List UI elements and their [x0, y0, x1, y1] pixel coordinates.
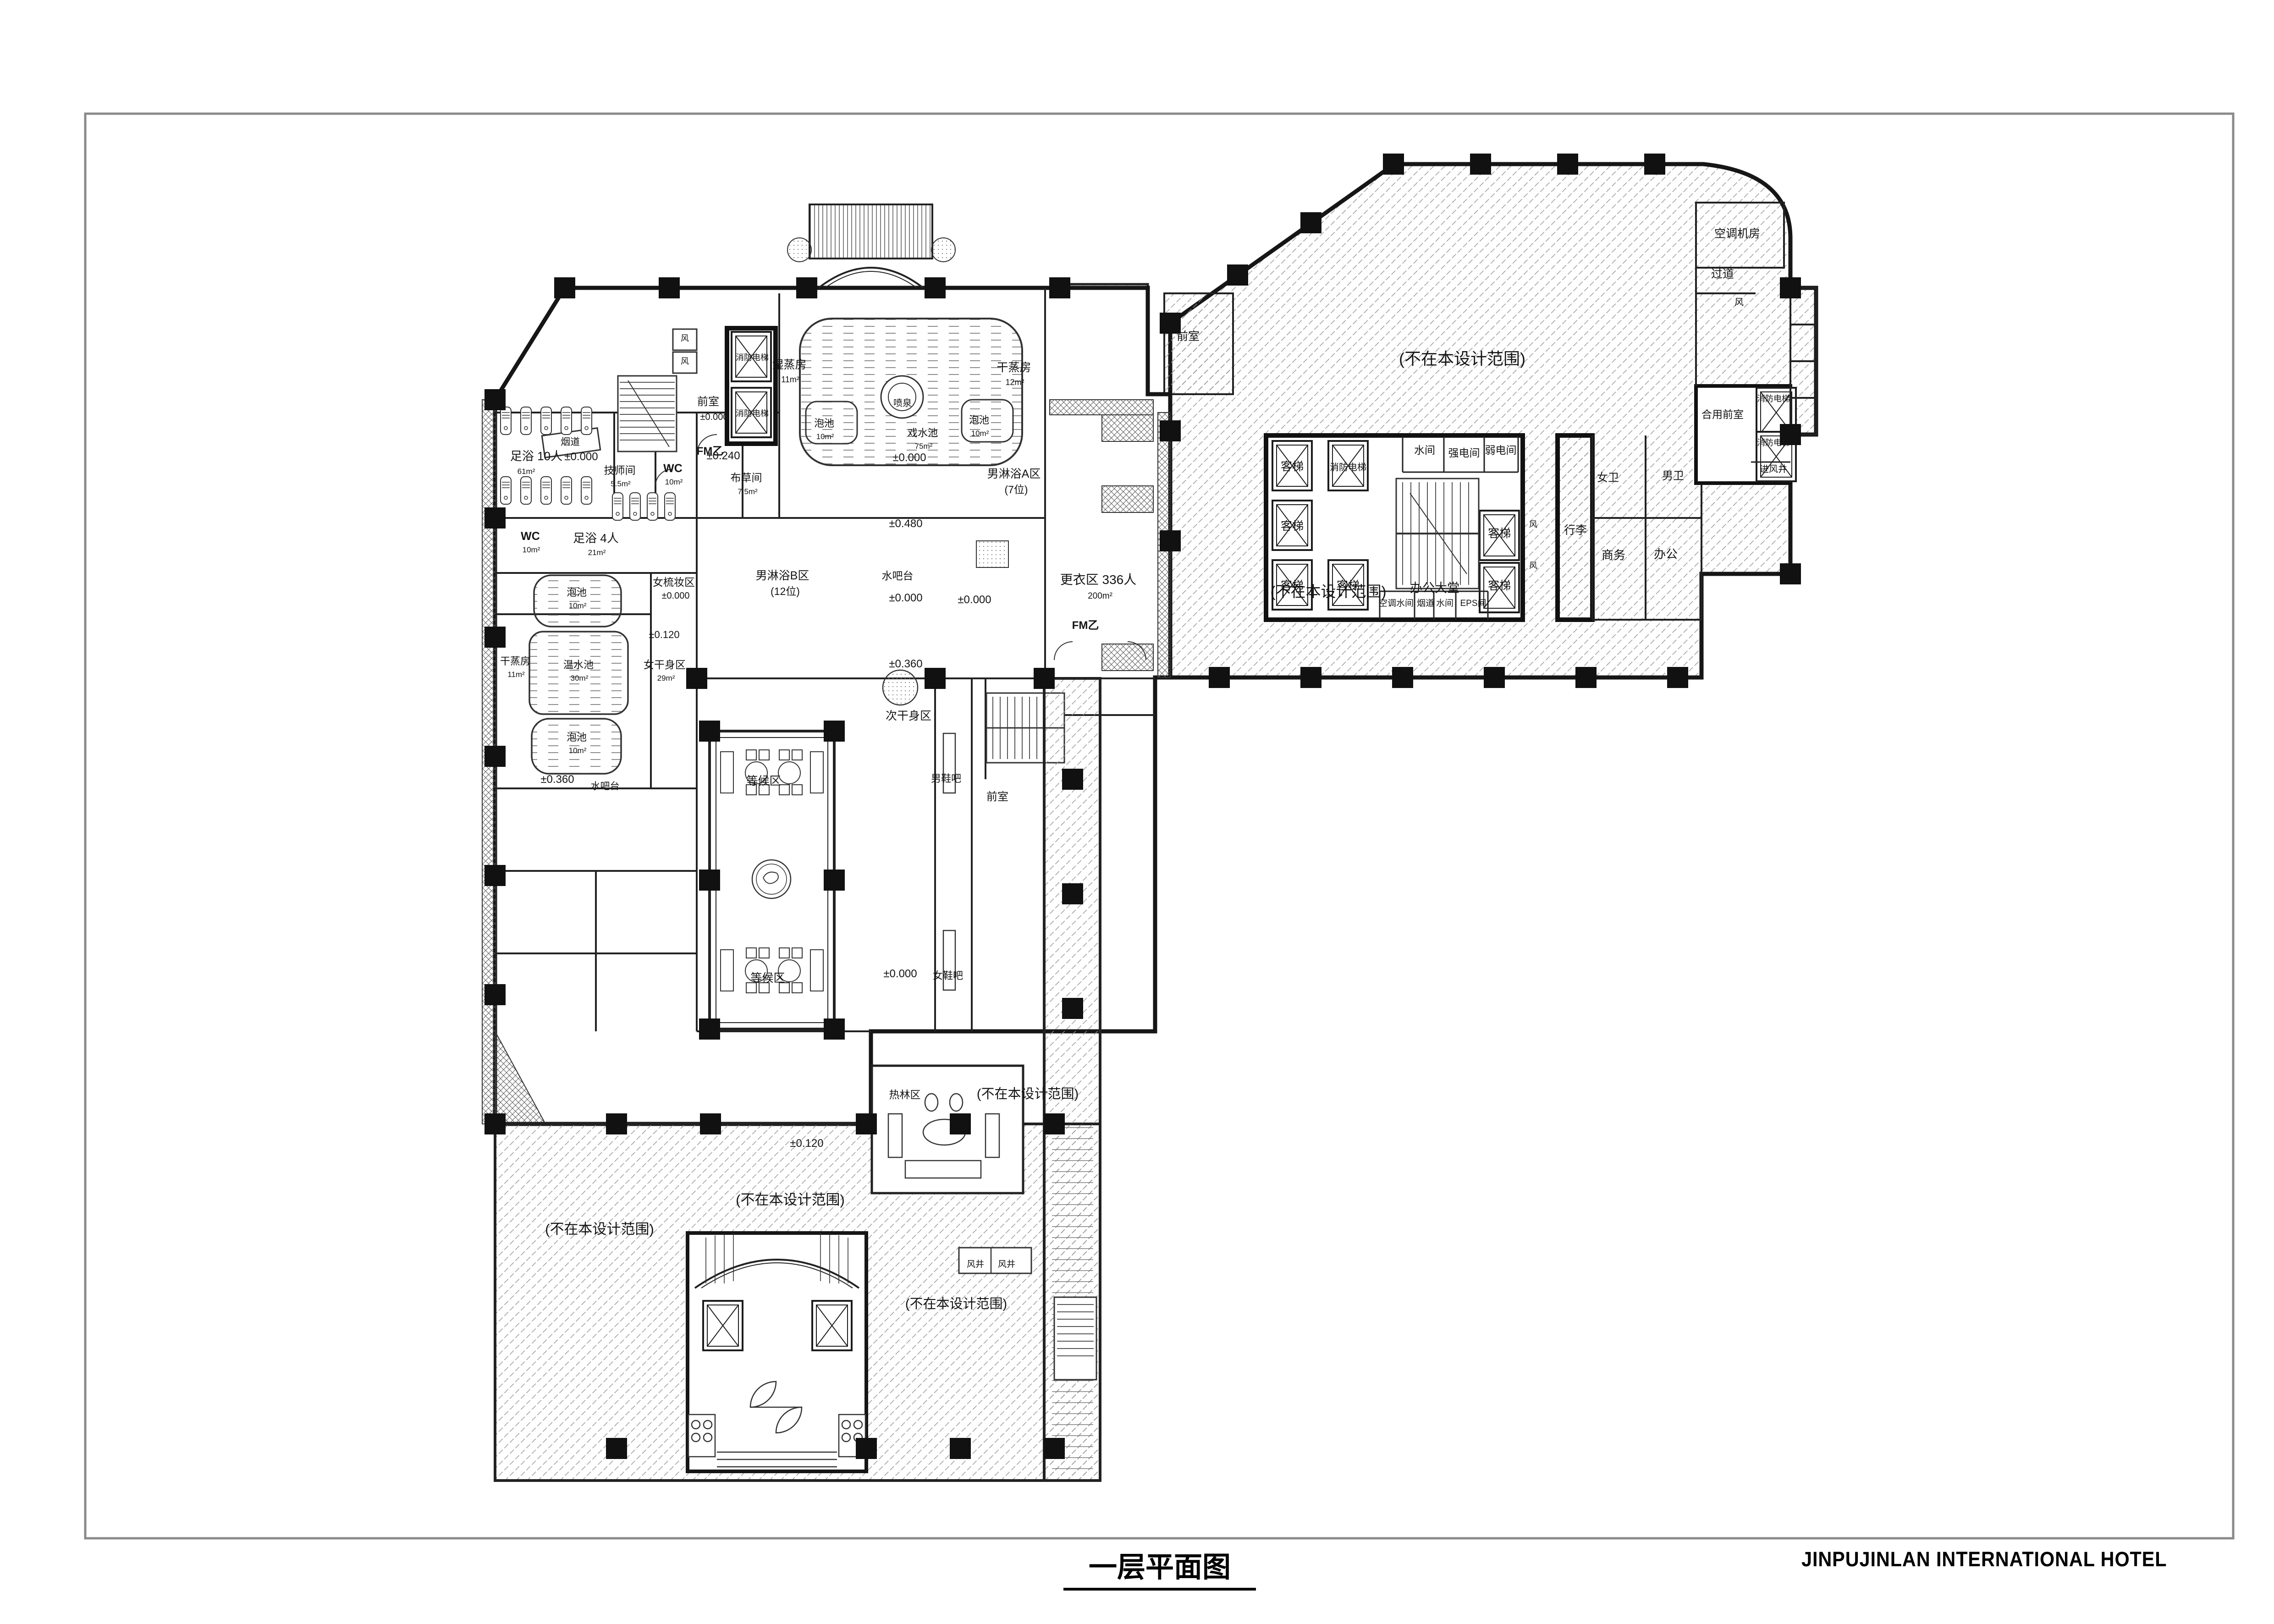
level-0-footbath-label: ±0.000: [564, 451, 598, 463]
front-room-south-label: 前室: [986, 791, 1008, 803]
office-room-label: 办公: [1654, 547, 1678, 561]
smoke-duct-core-label: 烟道: [1417, 598, 1434, 608]
level-0-spa-label: ±0.000: [892, 451, 926, 464]
waiting-area-1-label: 等候区: [746, 775, 781, 787]
scope-note-south-west-label: (不在本设计范围): [545, 1221, 654, 1237]
level-0360-c-label: ±0.360: [889, 658, 922, 670]
wc-2-area-label: 10m²: [523, 545, 540, 554]
pass-lift-r1-label: 客梯: [1488, 527, 1511, 540]
water-bar-c-label: 水吧台: [882, 570, 914, 582]
wc-1-label: WC: [663, 462, 683, 475]
business-room-label: 商务: [1602, 548, 1625, 562]
corridor-annex-label: 过道: [1711, 268, 1734, 281]
wind-shaft-r2-label: 风: [1529, 561, 1537, 570]
wing-front-room: [1164, 293, 1233, 394]
fire-lift-core-label: 消防电梯: [1330, 462, 1366, 473]
pass-lift-r2-label: 客梯: [1488, 579, 1511, 592]
men-shower-a-label: 男淋浴A区: [987, 468, 1041, 480]
soak-pool-top-l-label: 泡池: [814, 418, 834, 429]
men-shoe-bar-label: 男鞋吧: [931, 773, 961, 784]
fountain-icon: [881, 376, 923, 418]
drawing-sheet: (不在本设计范围)(不在本设计范围)办公大堂客梯客梯客梯消防电梯客梯水间强电间弱…: [0, 0, 2274, 1624]
soak-pool-w1-label: 泡池: [567, 587, 587, 598]
soak-pool-top-r-area-label: 10m²: [971, 429, 989, 438]
dry-steam-area-11-label: 11m²: [507, 670, 525, 679]
water-room-top-label: 水间: [1414, 444, 1435, 456]
women-dressing-label: 女梳妆区: [653, 576, 695, 588]
hotel-name: JINPUJINLAN INTERNATIONAL HOTEL: [1801, 1547, 2037, 1571]
front-room-wing-label: 前室: [1177, 330, 1200, 343]
level-0120-s-label: ±0.120: [790, 1137, 823, 1150]
eps-room-label: EPS间: [1460, 598, 1486, 608]
soak-pool-w2-area-label: 10m²: [569, 746, 587, 755]
tech-room-area-label: 5.5m²: [611, 479, 631, 488]
fire-lift-c1-label: 消防电梯: [736, 353, 769, 362]
soak-pool-w1-area-label: 10m²: [569, 601, 587, 610]
scope-note-south-east-label: (不在本设计范围): [905, 1296, 1007, 1311]
level-0120-w-label: ±0.120: [649, 629, 679, 640]
fire-lift-c2-label: 消防电梯: [736, 409, 769, 418]
ac-water-room-label: 空调水间: [1379, 598, 1414, 608]
wind-shaft-annex-label: 风: [1734, 297, 1744, 308]
linen-room-label: 布草间: [731, 472, 762, 484]
spa-pools: [800, 319, 1022, 465]
scope-note-right-upper-label: (不在本设计范围): [1399, 349, 1525, 368]
shared-front-room-label: 合用前室: [1701, 408, 1744, 420]
luggage-room-label: 行李: [1564, 524, 1587, 537]
foot-bath-10-area-label: 61m²: [518, 467, 535, 476]
women-shoe-bar-label: 女鞋吧: [933, 970, 963, 981]
warm-pool-label: 温水池: [563, 659, 594, 671]
pass-lift-l3-label: 客梯: [1281, 579, 1304, 592]
rest-pocket: [872, 1066, 1023, 1193]
fountain-label: 喷泉: [893, 398, 912, 408]
scope-note-south-center-label: (不在本设计范围): [736, 1192, 845, 1208]
pass-lift-m-label: 客梯: [1337, 579, 1360, 592]
dry-steam-room-12-label: 干蒸房: [997, 361, 1031, 374]
dry-steam-room-11-label: 干蒸房: [500, 655, 530, 667]
strong-elec-room-label: 强电间: [1448, 447, 1480, 459]
level-0480-label: ±0.480: [889, 517, 922, 530]
smoke-duct-nw-label: 烟道: [561, 437, 580, 447]
linen-room-area-label: 7.5m²: [738, 487, 758, 496]
rest-zone-label: 热林区: [889, 1089, 921, 1101]
drawing-title: 一层平面图: [1063, 1544, 1256, 1591]
changing-area-label: 更衣区 336人: [1060, 573, 1137, 587]
dry-steam-area-12-label: 12m²: [1005, 378, 1024, 387]
level-0-shoe-label: ±0.000: [883, 968, 917, 980]
level-0-dressing-label: ±0.000: [661, 591, 689, 601]
women-wc-wing-label: 女卫: [1597, 472, 1619, 484]
wc-2-label: WC: [521, 530, 540, 543]
core-stair: [1396, 479, 1479, 589]
play-pool-label: 戏水池: [908, 427, 938, 439]
waiting-area-2-label: 等候区: [750, 972, 785, 985]
wind-shaft-c2-label: 风: [681, 357, 689, 366]
wind-shaft-s1-label: 风井: [967, 1259, 984, 1269]
floor-plan-canvas: (不在本设计范围)(不在本设计范围)办公大堂客梯客梯客梯消防电梯客梯水间强电间弱…: [0, 0, 2274, 1624]
pass-lift-l2-label: 客梯: [1281, 520, 1304, 533]
play-pool-area-label: 75m²: [915, 442, 933, 451]
wind-shaft-s2-label: 风井: [998, 1259, 1015, 1269]
warm-pool-area-label: 30m²: [571, 674, 589, 683]
soak-pool-top-r-label: 泡池: [969, 414, 989, 426]
fire-lift-annex-2-label: 消防电梯: [1757, 438, 1790, 447]
level-0-bar-label: ±0.000: [889, 592, 922, 604]
soak-pool-top-l-area-label: 10m²: [816, 432, 834, 441]
fm-door-1-label: FM乙: [697, 445, 724, 457]
ac-machine-room-label: 空调机房: [1714, 227, 1760, 240]
north-entrance: [787, 204, 955, 288]
wet-steam-area-label: 11m²: [781, 375, 799, 384]
air-inlet-shaft-label: 进风井: [1760, 464, 1787, 474]
changing-area-size-label: 200m²: [1088, 591, 1112, 601]
office-lobby-label: 办公大堂: [1410, 581, 1459, 595]
foot-bath-10-label: 足浴 10人: [510, 449, 562, 463]
women-dry-area-label: 女干身区: [644, 659, 686, 671]
foot-bath-4-label: 足浴 4人: [573, 531, 619, 545]
women-dry-area-sub-label: 29m²: [657, 674, 675, 683]
soak-pool-w2-label: 泡池: [567, 732, 587, 743]
wind-shaft-c1-label: 风: [681, 334, 689, 343]
elevator-icon: [812, 1301, 852, 1350]
wc-1-area-label: 10m²: [665, 478, 683, 486]
men-shower-b-label: 男淋浴B区: [756, 569, 809, 582]
men-wc-wing-label: 男卫: [1662, 470, 1684, 482]
wet-steam-room-label: 湿蒸房: [772, 358, 806, 371]
weak-elec-room-label: 弱电间: [1485, 444, 1517, 456]
water-bar-w-label: 水吧台: [591, 781, 620, 792]
elevator-icon: [703, 1301, 743, 1350]
sec-dry-area-label: 次干身区: [886, 710, 931, 722]
level-0-front-label: ±0.000: [700, 412, 728, 422]
pass-lift-l1-label: 客梯: [1281, 460, 1304, 473]
scope-note-mid-east-label: (不在本设计范围): [977, 1086, 1079, 1101]
fire-lift-annex-1-label: 消防电梯: [1757, 394, 1790, 403]
fm-door-2-label: FM乙: [1072, 619, 1099, 632]
men-shower-b-cap-label: (12位): [771, 585, 800, 597]
level-0-changing-label: ±0.000: [958, 594, 991, 606]
water-room-2-label: 水间: [1436, 598, 1454, 608]
front-room-center-label: 前室: [697, 396, 719, 408]
level-0360-w-label: ±0.360: [540, 773, 574, 786]
south-entrance: [688, 1233, 866, 1471]
tech-room-label: 技师间: [604, 464, 636, 476]
sheet-frame: [85, 114, 2233, 1538]
wind-shaft-r1-label: 风: [1529, 520, 1537, 529]
foot-bath-4-area-label: 21m²: [588, 548, 606, 557]
men-shower-a-cap-label: (7位): [1004, 484, 1028, 495]
